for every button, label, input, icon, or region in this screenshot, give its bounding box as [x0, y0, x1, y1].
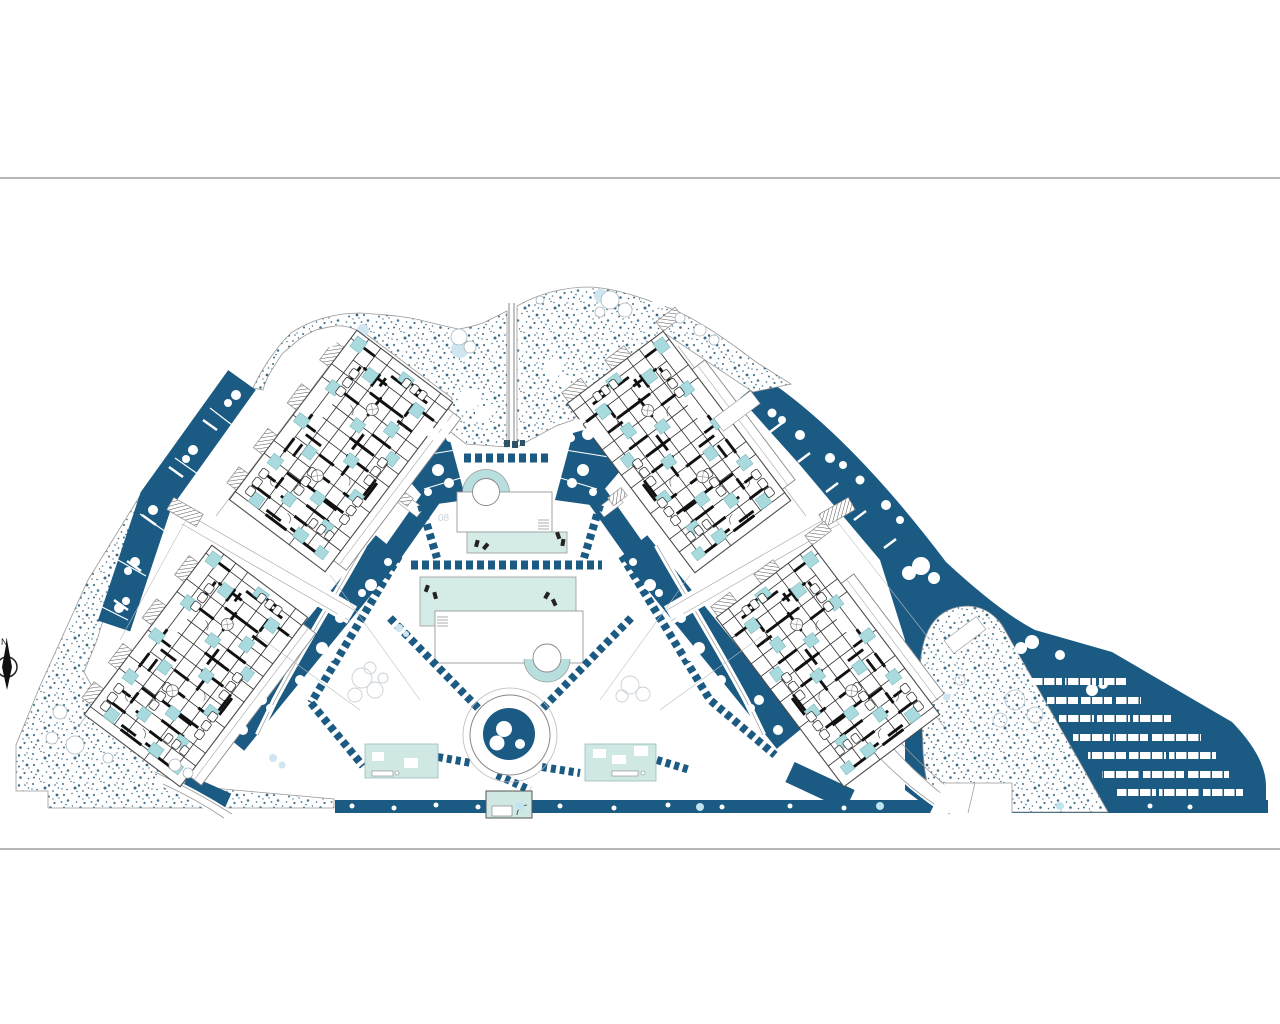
svg-text:08: 08	[438, 513, 450, 524]
